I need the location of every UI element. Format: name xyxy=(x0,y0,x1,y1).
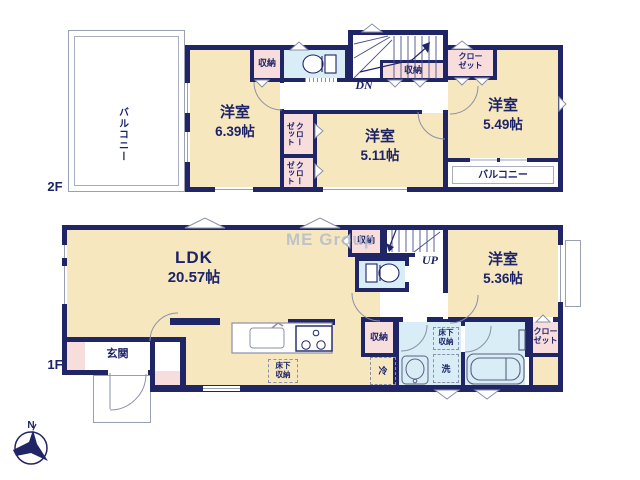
window xyxy=(323,187,407,192)
compass-north-label: N xyxy=(24,420,38,432)
wall xyxy=(461,319,465,326)
entrance-step xyxy=(155,342,180,371)
window xyxy=(500,158,527,162)
room-2f-639-area: 6.39帖 xyxy=(190,124,280,140)
floor-label-1f: 1F xyxy=(42,358,68,373)
underfloor-wash-label: 床下 収納 xyxy=(433,329,459,346)
underfloor-line: 収納 xyxy=(268,371,298,380)
storage-1f-mid-label: 収納 xyxy=(363,332,395,342)
storage-2f-top-label: 収納 xyxy=(250,58,284,68)
laundry-label: 洗 xyxy=(431,364,461,374)
wall xyxy=(355,288,409,292)
room-2f-549-area: 5.49帖 xyxy=(448,117,558,133)
ldk-area: 20.57帖 xyxy=(134,269,254,286)
wall xyxy=(288,319,335,325)
wall xyxy=(355,257,409,261)
window xyxy=(558,245,563,302)
room-1f-536-area: 5.36帖 xyxy=(448,271,558,287)
wall xyxy=(180,338,186,392)
door-gap xyxy=(280,83,284,109)
room-2f-639-name: 洋室 xyxy=(190,104,280,121)
wall xyxy=(380,60,443,63)
room-2f-511-area: 5.11帖 xyxy=(317,148,443,164)
compass-needle xyxy=(13,430,48,461)
closet-line: ゼット xyxy=(448,61,493,70)
closet-line: クロー xyxy=(448,52,493,61)
window xyxy=(470,158,497,162)
wall xyxy=(345,50,348,78)
door-gap xyxy=(403,317,427,322)
wall xyxy=(558,45,563,192)
shutter-box xyxy=(565,240,581,307)
wall xyxy=(185,45,348,50)
bathroom-1f xyxy=(465,322,525,385)
wall xyxy=(461,352,465,392)
toilet-room-1f xyxy=(359,261,405,288)
wall xyxy=(448,45,563,50)
wall xyxy=(348,30,353,80)
wall xyxy=(150,342,155,372)
closet-line: ゼット xyxy=(286,115,295,153)
shoe-cabinet-right xyxy=(155,371,180,385)
door-gap xyxy=(443,293,448,319)
wall xyxy=(355,257,359,292)
watermark: ME Group xyxy=(286,230,375,250)
room-2f-549-name: 洋室 xyxy=(448,97,558,114)
window xyxy=(215,187,253,192)
wall xyxy=(62,337,186,342)
wall xyxy=(284,154,313,158)
stairwell-1f xyxy=(387,229,439,253)
wall xyxy=(280,109,284,192)
wall xyxy=(361,317,397,322)
shoe-cabinet-left xyxy=(67,342,85,370)
closet-1f-right-label: クロー ゼット xyxy=(531,327,560,345)
window xyxy=(62,266,67,304)
balcony-2f-right-label: バルコニー xyxy=(448,170,558,182)
hallway-1f-lower xyxy=(384,292,408,317)
room-1f-536-name: 洋室 xyxy=(448,251,558,268)
vent-window xyxy=(305,78,337,82)
stairs-1f-label: UP xyxy=(417,254,443,268)
closet-line: クロー xyxy=(295,115,304,153)
underfloor-line: 収納 xyxy=(433,338,459,347)
door-gap xyxy=(108,370,148,375)
toilet-room-2f xyxy=(284,50,345,78)
underfloor-kitchen-label: 床下 収納 xyxy=(268,362,298,379)
window xyxy=(62,245,67,258)
closet-2f-right-label: クロー ゼット xyxy=(448,52,493,70)
nook-below-closet-1f xyxy=(533,357,558,385)
closet-line: ゼット xyxy=(531,336,560,345)
door-gap xyxy=(380,293,384,317)
window xyxy=(203,386,240,391)
wall xyxy=(493,50,497,80)
ldk-name: LDK xyxy=(144,248,244,268)
room-2f-511-name: 洋室 xyxy=(317,128,443,145)
wall xyxy=(280,110,422,114)
closet-2f-mid-lower-label: クロー ゼット xyxy=(286,159,304,186)
closet-2f-mid-upper-label: クロー ゼット xyxy=(286,115,304,153)
closet-line: ゼット xyxy=(286,159,295,186)
fridge-label: 冷 xyxy=(368,366,398,376)
wall xyxy=(170,318,220,325)
floor-label-2f: 2F xyxy=(42,180,68,195)
closet-line: クロー xyxy=(295,159,304,186)
floor-plan: バルコニー 洋室 6.39帖 洋室 5.11帖 洋室 5.49帖 収納 xyxy=(0,0,640,480)
porch xyxy=(93,375,151,423)
door-gap xyxy=(405,266,409,282)
wall xyxy=(529,357,533,392)
compass-circle xyxy=(15,432,47,464)
closet-line: クロー xyxy=(531,327,560,336)
balcony-2f-left-label: バルコニー xyxy=(116,92,128,176)
wall xyxy=(348,30,448,35)
wall xyxy=(448,76,497,80)
storage-2f-under-stairs-label: 収納 xyxy=(383,65,443,75)
entrance-label: 玄関 xyxy=(85,348,150,361)
wall xyxy=(529,353,558,357)
door-gap xyxy=(533,317,553,322)
stairs-2f-label: DN xyxy=(349,79,379,93)
wall xyxy=(150,370,155,392)
